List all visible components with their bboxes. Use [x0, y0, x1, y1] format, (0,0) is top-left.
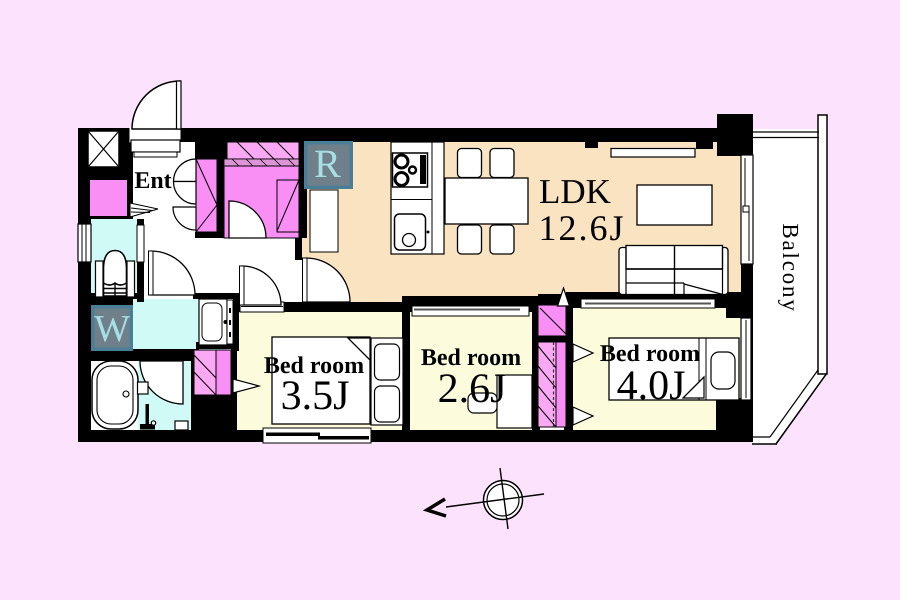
- svg-text:4.0J: 4.0J: [617, 363, 686, 409]
- svg-text:LDK: LDK: [539, 172, 611, 211]
- svg-text:W: W: [94, 308, 130, 350]
- svg-text:3.5J: 3.5J: [281, 373, 350, 419]
- svg-text:R: R: [314, 141, 341, 186]
- svg-text:Ent: Ent: [134, 168, 171, 194]
- svg-text:12.6J: 12.6J: [538, 208, 625, 248]
- svg-text:Balcony: Balcony: [778, 223, 803, 312]
- svg-text:2.6J: 2.6J: [438, 366, 507, 412]
